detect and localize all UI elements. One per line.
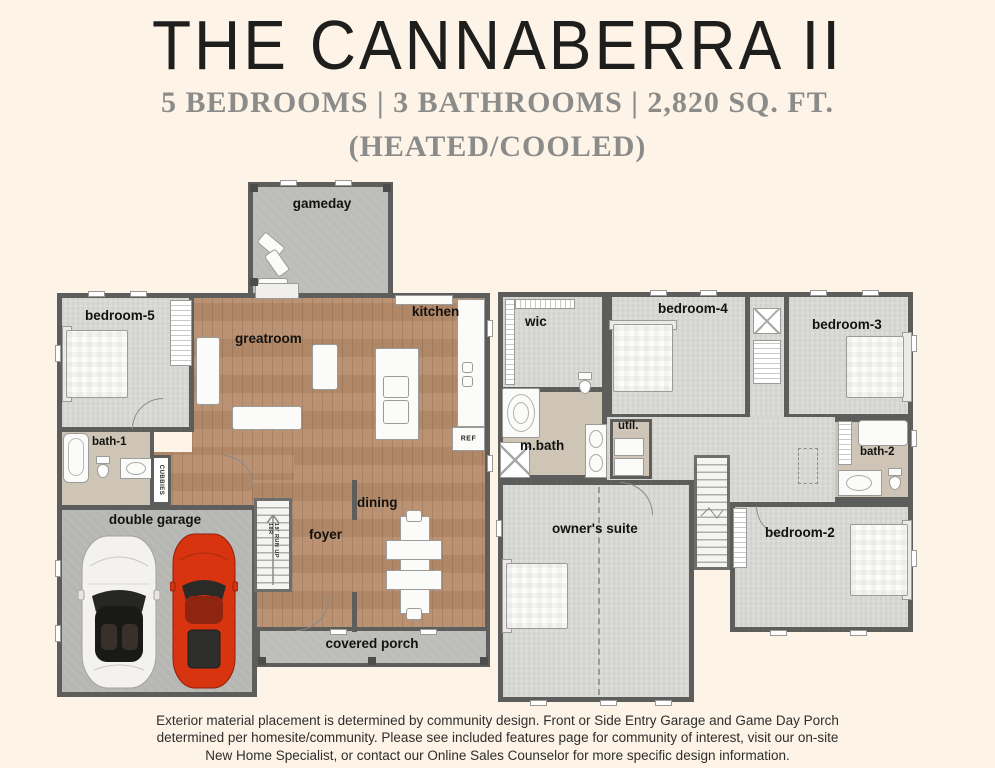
bedroom3-label: bedroom-3 bbox=[812, 317, 882, 332]
tray-ceiling-line bbox=[598, 487, 600, 695]
toilet bbox=[578, 372, 592, 380]
wic-shelving bbox=[515, 299, 575, 309]
bedroom4-label: bedroom-4 bbox=[658, 301, 728, 316]
bathtub bbox=[858, 420, 908, 446]
bedroom2-closet bbox=[733, 508, 747, 568]
bed bbox=[506, 563, 568, 629]
owners-suite-label: owner's suite bbox=[552, 521, 638, 536]
mbath-label: m.bath bbox=[520, 438, 564, 453]
util-label: util. bbox=[618, 420, 638, 432]
wic-shelving bbox=[505, 299, 515, 385]
hall-closet bbox=[753, 340, 781, 384]
linen-closet bbox=[753, 308, 781, 334]
attic-access bbox=[798, 448, 818, 484]
bath2-linen bbox=[838, 421, 852, 465]
washer bbox=[614, 438, 644, 456]
bed bbox=[613, 324, 673, 392]
bed bbox=[846, 336, 904, 398]
dryer bbox=[614, 458, 644, 476]
toilet bbox=[888, 468, 902, 476]
bedroom2-label: bedroom-2 bbox=[765, 525, 835, 540]
stairs-second-floor bbox=[694, 455, 730, 570]
second-floor-plan: wic bedroom-4 bedroom-3 m.bath util. bat… bbox=[0, 0, 995, 768]
bed bbox=[850, 524, 908, 596]
wic-label: wic bbox=[525, 314, 547, 329]
bath2-label: bath-2 bbox=[860, 446, 895, 458]
